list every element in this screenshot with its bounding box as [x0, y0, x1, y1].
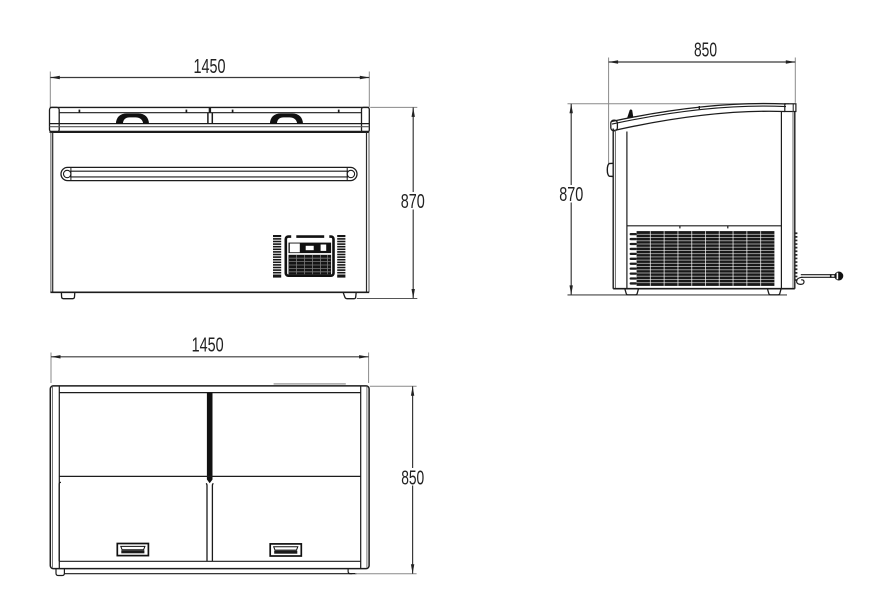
svg-text:1450: 1450	[194, 56, 226, 78]
svg-text:870: 870	[559, 184, 583, 206]
svg-text:850: 850	[401, 467, 424, 489]
svg-text:1450: 1450	[192, 335, 224, 357]
svg-text:870: 870	[401, 191, 425, 213]
svg-text:850: 850	[694, 40, 717, 62]
